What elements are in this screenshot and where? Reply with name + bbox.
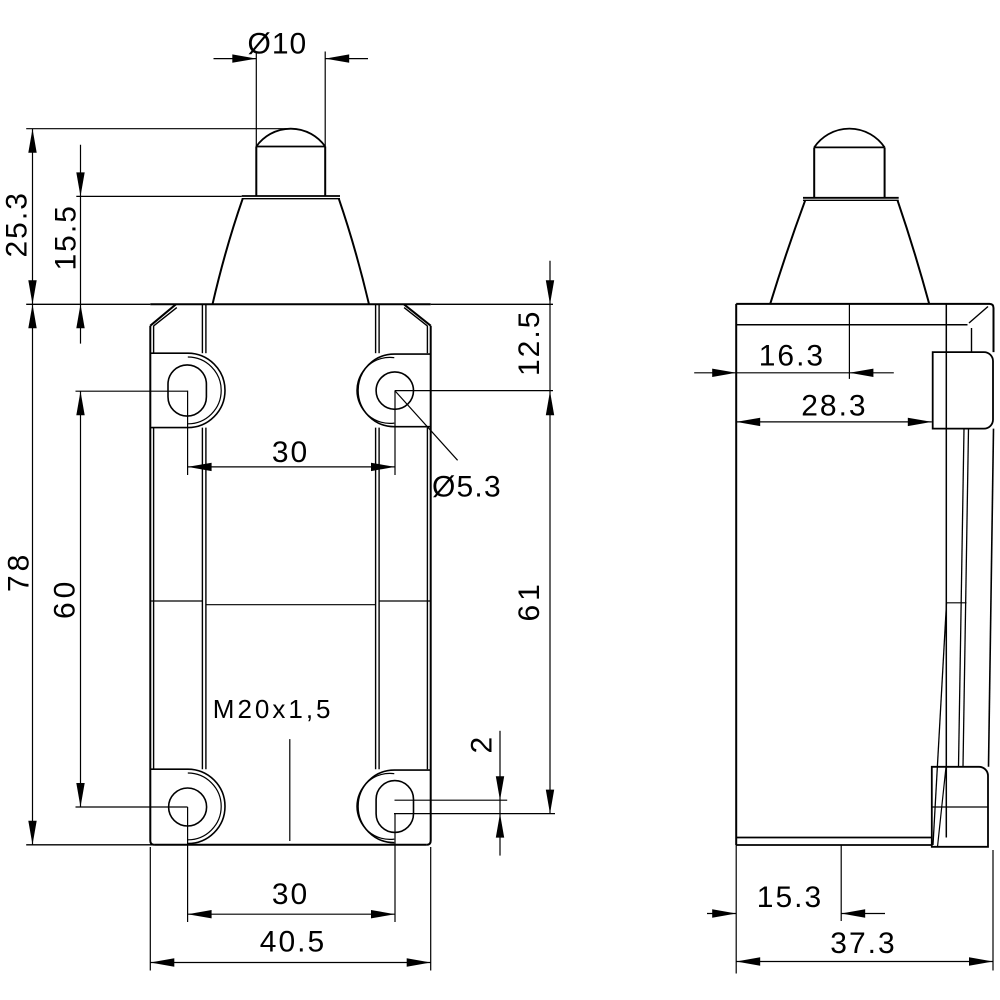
svg-text:25.3: 25.3 bbox=[1, 191, 34, 257]
svg-text:61: 61 bbox=[513, 580, 546, 621]
svg-text:M20x1,5: M20x1,5 bbox=[213, 694, 334, 724]
svg-text:15.3: 15.3 bbox=[757, 881, 823, 914]
svg-text:28.3: 28.3 bbox=[801, 390, 867, 423]
svg-text:78: 78 bbox=[3, 551, 36, 592]
svg-text:37.3: 37.3 bbox=[830, 927, 896, 960]
svg-text:60: 60 bbox=[49, 578, 82, 619]
svg-text:Ø10: Ø10 bbox=[248, 28, 308, 61]
svg-text:40.5: 40.5 bbox=[260, 925, 326, 958]
svg-text:Ø5.3: Ø5.3 bbox=[432, 471, 502, 504]
svg-text:12.5: 12.5 bbox=[513, 310, 546, 376]
svg-text:16.3: 16.3 bbox=[759, 340, 825, 373]
svg-text:15.5: 15.5 bbox=[50, 204, 83, 270]
svg-text:30: 30 bbox=[272, 878, 309, 911]
svg-text:30: 30 bbox=[272, 436, 309, 469]
svg-text:2: 2 bbox=[466, 735, 499, 754]
